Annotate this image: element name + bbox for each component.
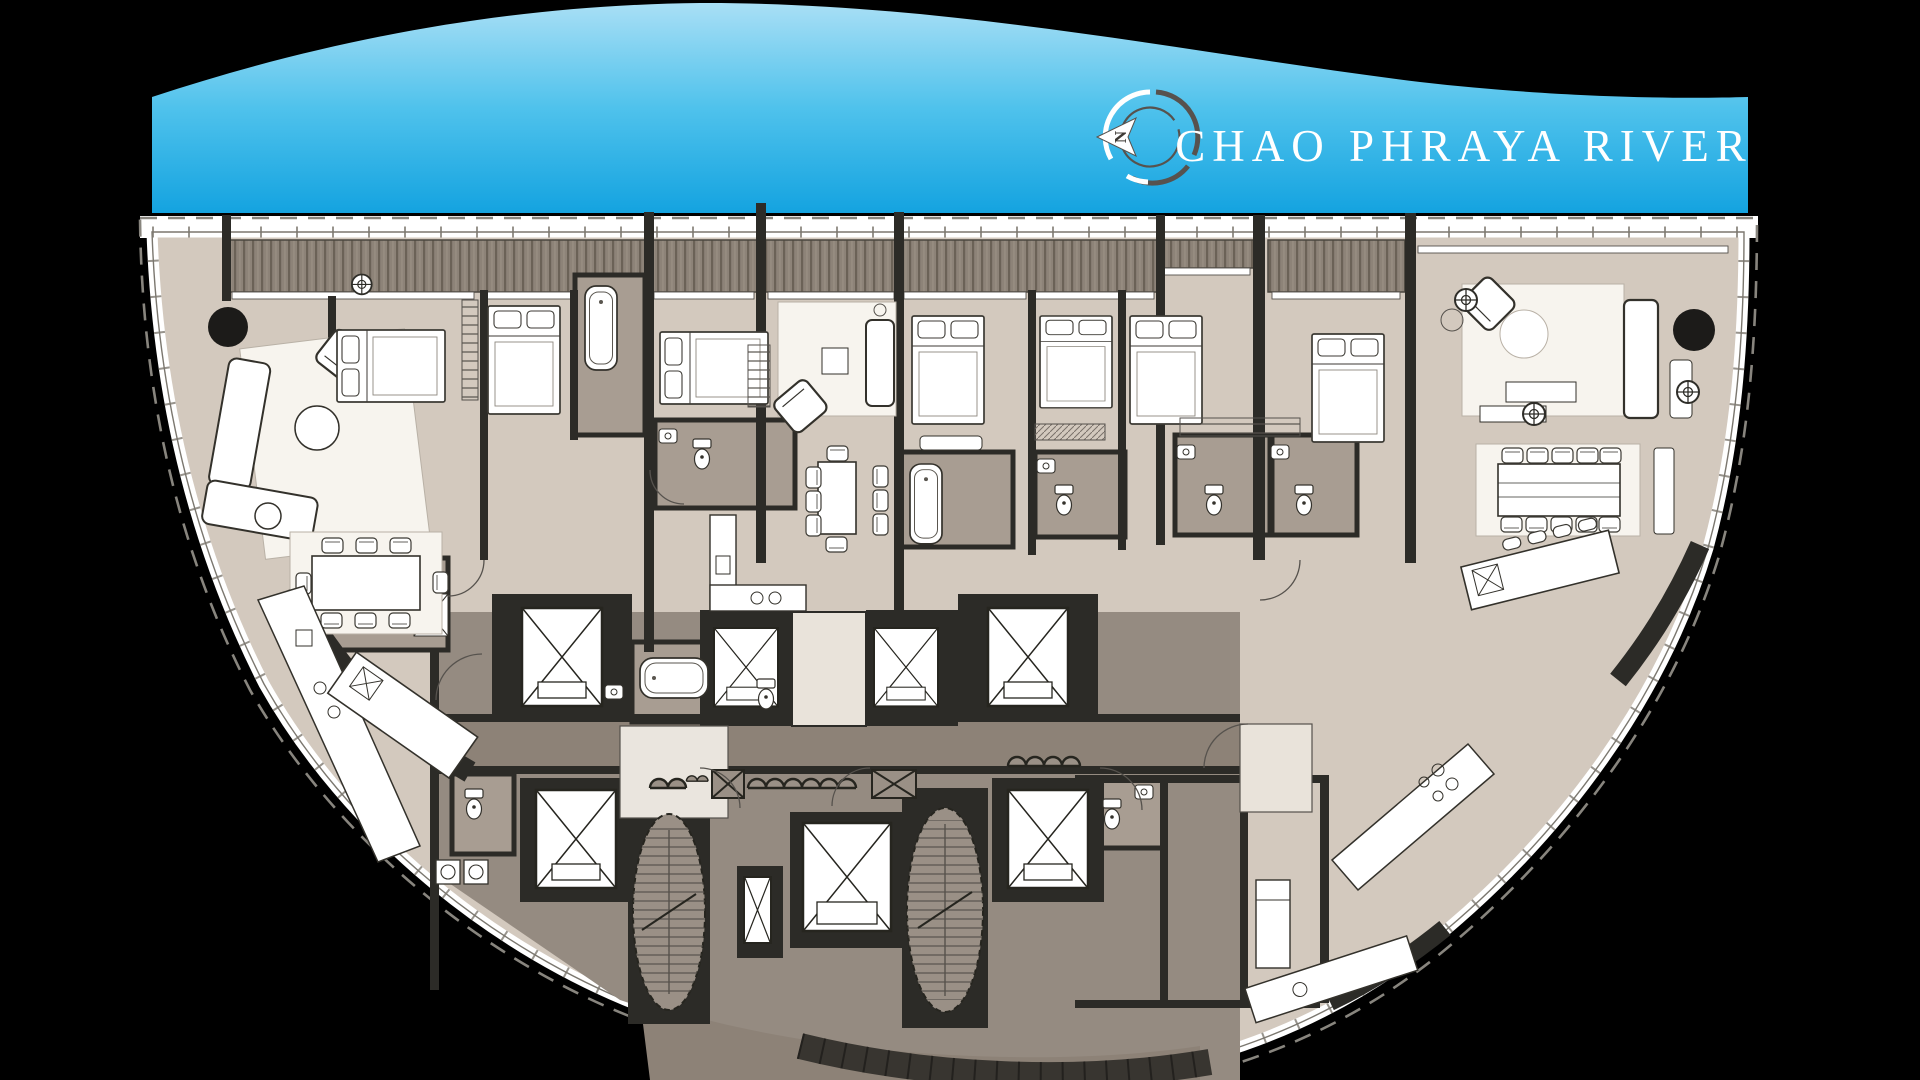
elevator	[988, 608, 1068, 706]
stair-right	[907, 808, 983, 1012]
closet	[1035, 424, 1105, 440]
bathtub	[910, 464, 942, 544]
service-elevator	[803, 823, 891, 931]
north-label: N	[1111, 130, 1130, 143]
elevator	[1008, 790, 1088, 888]
black-round-table	[208, 307, 248, 347]
stair-left	[633, 814, 705, 1010]
round-table	[1500, 310, 1548, 358]
river-band	[152, 3, 1748, 213]
bed-bench	[920, 436, 982, 450]
floor-plan-page: N CHAO PHRAYA RIVER	[0, 0, 1920, 1080]
wardrobe	[748, 345, 770, 407]
bathtub	[585, 286, 617, 370]
bed	[337, 330, 445, 402]
bed	[912, 316, 984, 424]
river-banner: N CHAO PHRAYA RIVER	[152, 3, 1753, 213]
sofa	[1624, 300, 1658, 418]
elevator	[874, 628, 938, 706]
elevator	[522, 608, 602, 706]
bed	[1040, 316, 1112, 408]
dining-table	[1498, 464, 1620, 516]
kitchen-counter	[710, 585, 806, 611]
small-shaft	[744, 877, 771, 943]
sofa	[866, 320, 894, 406]
wardrobe	[462, 300, 478, 400]
sideboard	[1654, 448, 1674, 534]
coffee-table	[295, 406, 339, 450]
coffee-table	[822, 348, 848, 374]
bed	[1130, 316, 1202, 424]
elevator	[536, 790, 616, 888]
bathtub	[640, 658, 708, 698]
single-bed	[1256, 880, 1290, 968]
dining-table	[818, 462, 856, 534]
river-name-label: CHAO PHRAYA RIVER	[1175, 121, 1752, 171]
dining-table	[312, 556, 420, 610]
console	[1506, 382, 1576, 402]
closet	[1180, 418, 1300, 436]
bed	[488, 306, 560, 414]
floor-plan-canvas: N CHAO PHRAYA RIVER	[0, 0, 1920, 1080]
corridor	[430, 722, 1240, 768]
black-round-table	[1673, 309, 1715, 351]
bed	[1312, 334, 1384, 442]
